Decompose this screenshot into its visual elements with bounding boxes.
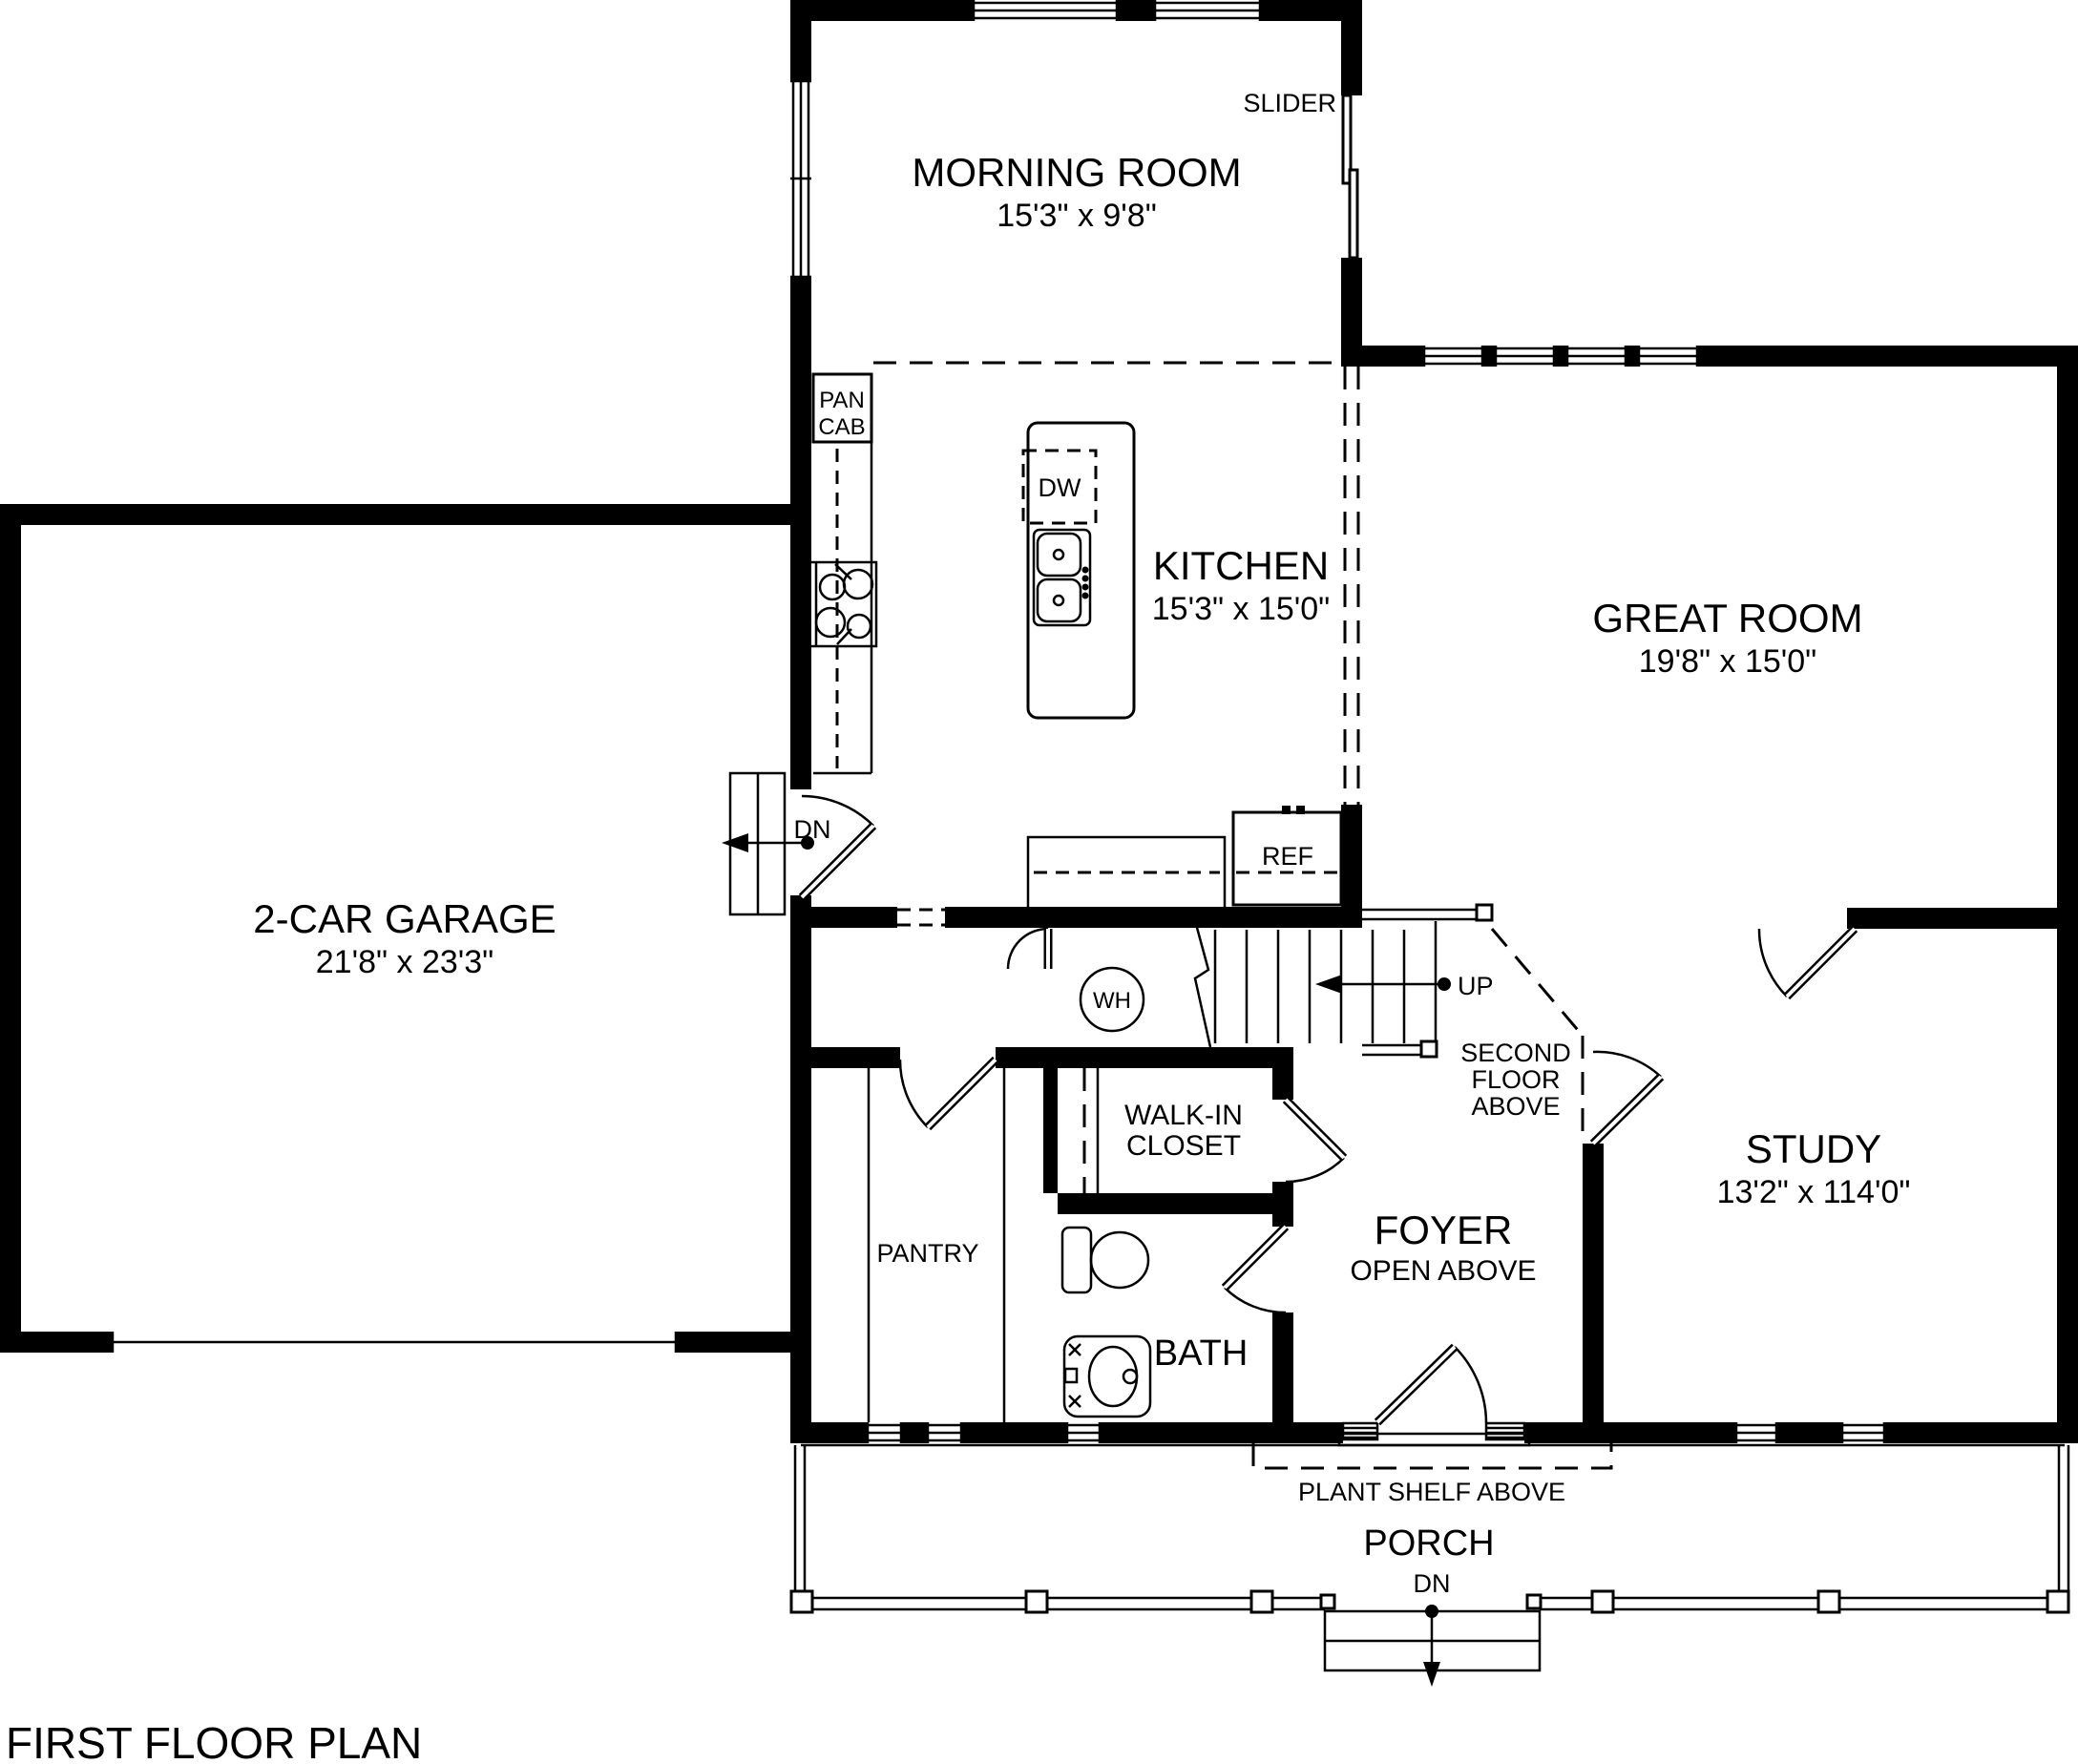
pantry-label: PANTRY — [876, 1239, 978, 1268]
foyer-note: OPEN ABOVE — [1350, 1255, 1536, 1287]
pantry-door — [900, 1060, 996, 1127]
window-study-1 — [1736, 1422, 1776, 1443]
water-heater-label: WH — [1093, 988, 1131, 1014]
study-dims: 13'2" x 114'0" — [1717, 1174, 1911, 1210]
slider-door — [1341, 95, 1362, 258]
second-floor-label-3: ABOVE — [1471, 1092, 1560, 1121]
plant-shelf-label: PLANT SHELF ABOVE — [1298, 1478, 1565, 1506]
garage-label: 2-CAR GARAGE — [253, 896, 556, 941]
down-porch-label: DN — [1414, 1569, 1451, 1598]
windows — [790, 0, 1884, 1443]
kitchen-dims: 15'3" x 15'0" — [1152, 591, 1330, 627]
stove — [803, 562, 876, 646]
walk-in-closet-label-1: WALK-IN — [1124, 1100, 1243, 1131]
window-morning-top-2 — [1155, 0, 1260, 21]
window-great-room-4 — [1639, 346, 1697, 367]
study-double-doors — [1593, 929, 1855, 1144]
walk-in-closet-label-2: CLOSET — [1126, 1130, 1241, 1162]
window-morning-left — [790, 81, 811, 277]
kitchen-label: KITCHEN — [1153, 543, 1329, 588]
window-great-room-2 — [1496, 346, 1554, 367]
second-floor-label-2: FLOOR — [1471, 1065, 1560, 1094]
porch-steps — [1325, 1605, 1540, 1687]
garage-door — [113, 1332, 676, 1353]
closet-door — [1286, 1100, 1344, 1182]
study-label: STUDY — [1746, 1126, 1881, 1171]
morning-room-label: MORNING ROOM — [912, 150, 1241, 195]
window-pantry-1 — [868, 1422, 901, 1443]
window-bath — [1067, 1422, 1100, 1443]
garage-dims: 21'8" x 23'3" — [316, 944, 493, 980]
down-garage-label: DN — [794, 815, 831, 844]
bath-sink — [1064, 1336, 1150, 1417]
toilet — [1062, 1228, 1148, 1292]
window-morning-top-1 — [974, 0, 1117, 21]
window-great-room-1 — [1424, 346, 1482, 367]
great-room-label: GREAT ROOM — [1592, 596, 1862, 640]
porch-label: PORCH — [1363, 1523, 1494, 1564]
great-room-dims: 19'8" x 15'0" — [1639, 643, 1816, 680]
window-pantry-2 — [928, 1422, 961, 1443]
kitchen-counter-west — [813, 442, 871, 773]
refrigerator-label: REF — [1262, 842, 1313, 871]
second-floor-label-1: SECOND — [1460, 1039, 1571, 1067]
bath-label: BATH — [1154, 1333, 1249, 1374]
kitchen-island — [1023, 423, 1134, 718]
window-study-2 — [1842, 1422, 1884, 1443]
front-door — [1339, 1347, 1529, 1445]
sheet-title: FIRST FLOOR PLAN — [6, 1718, 422, 1764]
window-great-room-3 — [1567, 346, 1626, 367]
first-floor-plan-sheet: MORNING ROOM 15'3" x 9'8" KITCHEN 15'3" … — [0, 0, 2078, 1764]
bath-door — [1225, 1227, 1286, 1312]
floor-plan-drawing: MORNING ROOM 15'3" x 9'8" KITCHEN 15'3" … — [0, 0, 2078, 1764]
dishwasher-label: DW — [1039, 473, 1081, 502]
hall-door — [1008, 929, 1048, 969]
garage-entry-door — [722, 773, 873, 914]
slider-label: SLIDER — [1243, 89, 1336, 117]
pan-cab-label-2: CAB — [818, 414, 865, 440]
pan-cab-label-1: PAN — [819, 388, 865, 413]
up-stairs-label: UP — [1458, 972, 1494, 1000]
foyer-label: FOYER — [1375, 1207, 1513, 1252]
morning-room-dims: 15'3" x 9'8" — [997, 198, 1157, 234]
